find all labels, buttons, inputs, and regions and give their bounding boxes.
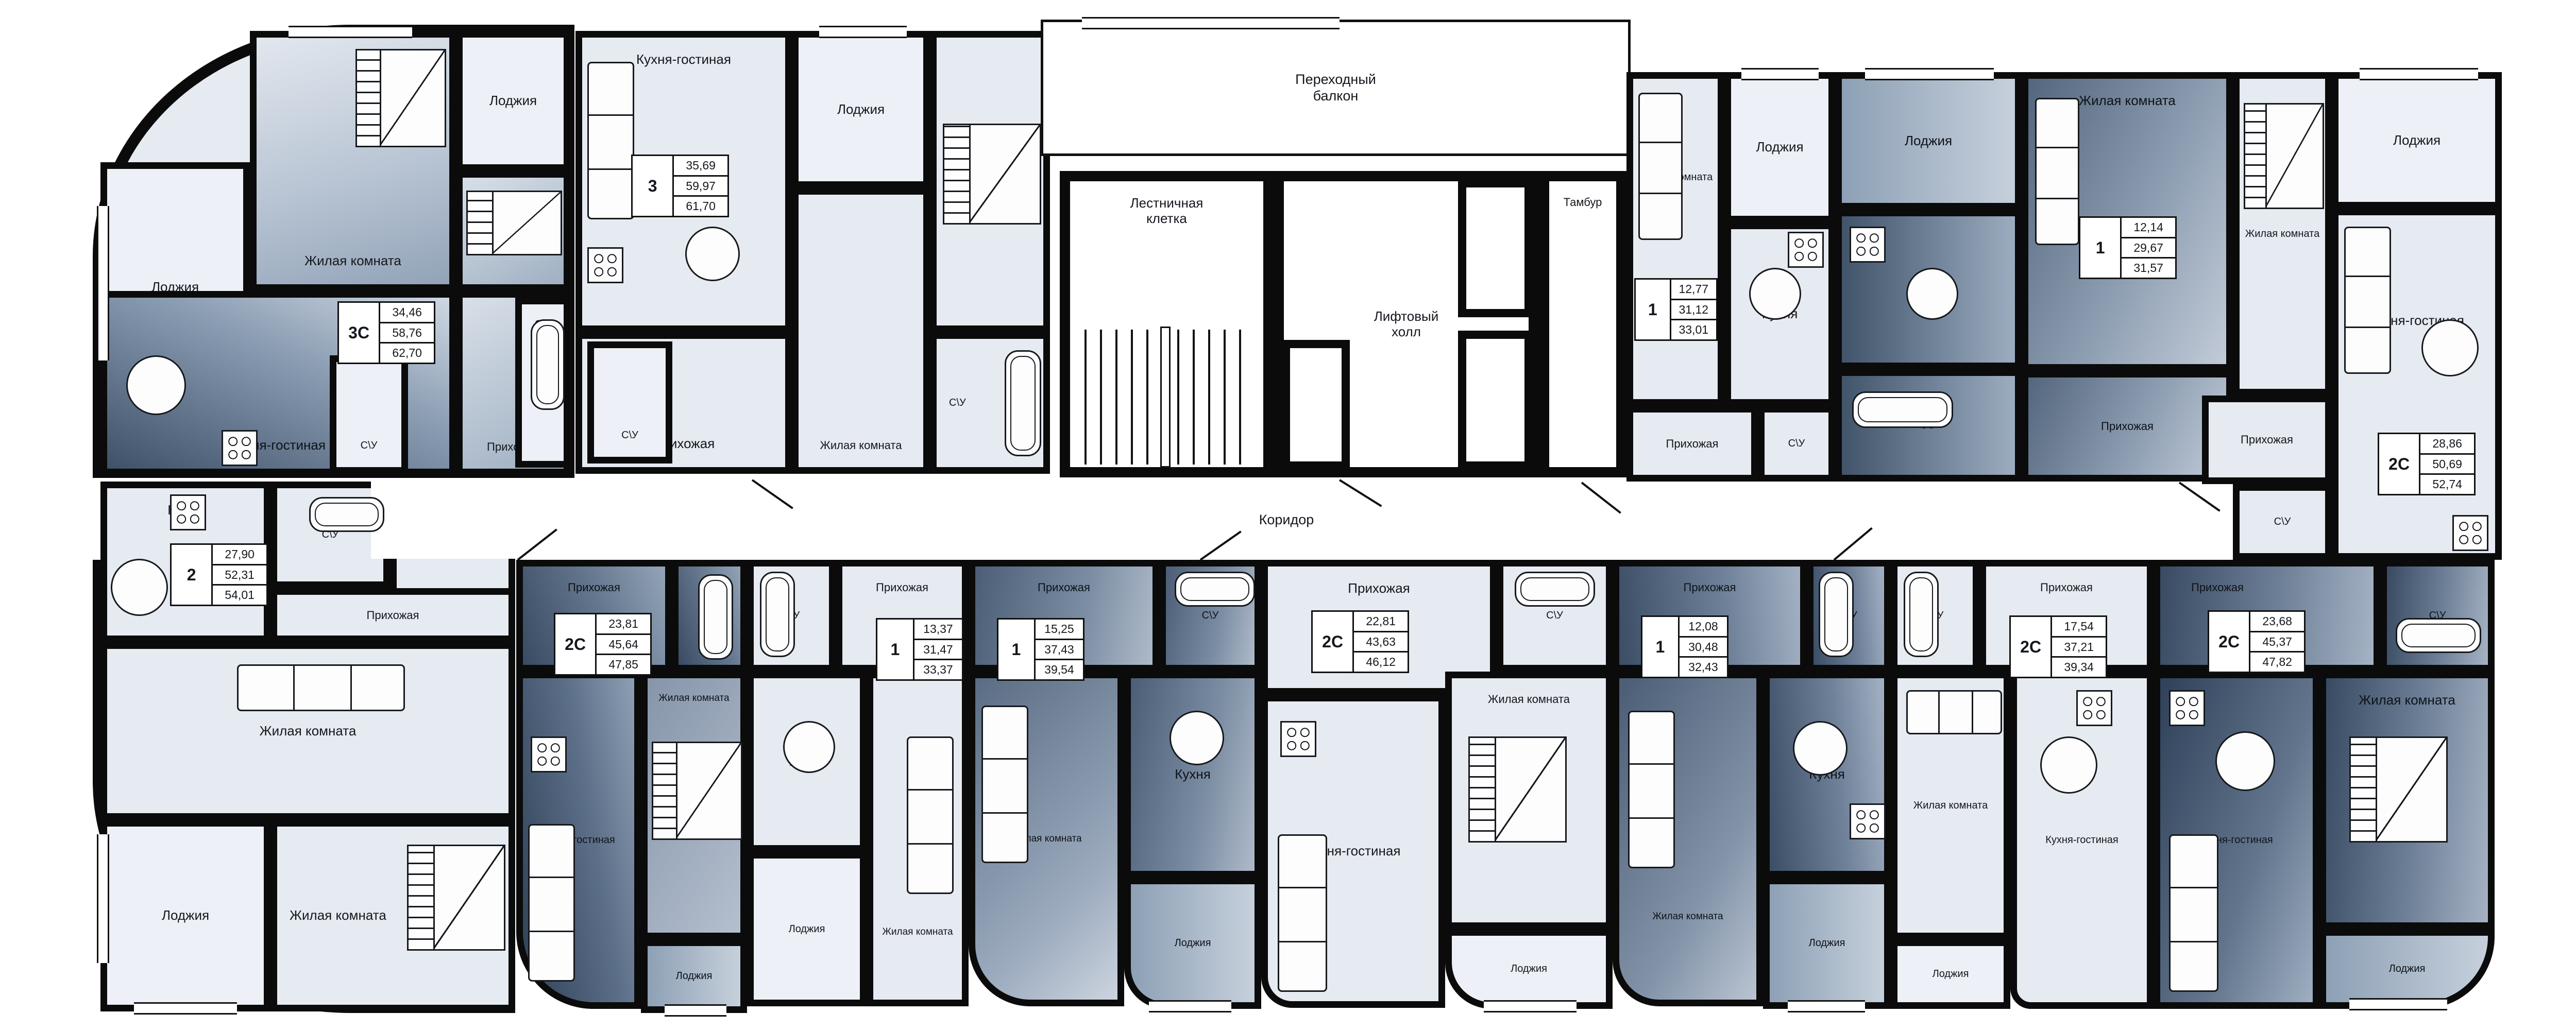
window [2360,68,2478,80]
room-label: Прихожая [1666,437,1719,450]
apt-area-total: 39,34 [2052,658,2106,677]
room-label: Лоджия [837,102,885,117]
apt-area-rooms: 35,69 [674,156,727,177]
window [1788,1000,1865,1012]
apt-area-living: 37,21 [2052,638,2106,658]
apt-d-hall: Прихожая [2022,371,2233,482]
apt-b-living-room-1: Жилая комната [792,188,930,474]
table-icon [1906,268,1958,320]
sofa-icon [981,706,1028,863]
room-label: Жилая комната [882,926,953,938]
stove-icon [531,736,567,772]
room-label: Лоджия [489,93,537,109]
bathtub-icon [698,574,733,660]
apt-area-rooms: 13,37 [914,620,962,640]
table-icon [2040,736,2097,794]
apt-type-label: 3 [633,156,674,216]
apt-k-loggia: Лоджия [1763,878,1891,1009]
room-label: Прихожая [1348,581,1410,596]
room-label: Прихожая [876,581,928,594]
room-label: Прихожая [1038,581,1090,594]
bed-icon [2244,103,2324,209]
stove-icon [170,494,206,530]
apt-area-total: 46,12 [1354,653,1408,672]
apt-m-wc: С\У [2380,560,2495,672]
bed-icon [943,124,1041,225]
tambour-label: Тамбур [1564,196,1602,209]
bathtub-icon [1819,572,1854,657]
room-label: Лоджия [1175,937,1211,949]
apt-area-living: 58,76 [380,323,434,344]
apt-area-total: 62,70 [380,344,434,363]
bathtub-icon [1852,391,1953,428]
bathtub-icon [1005,350,1041,456]
apt-area-rooms: 12,08 [1680,617,1727,638]
apt-type-label: 2 [172,545,213,605]
room-label: С\У [621,430,638,441]
apt-area-living: 43,63 [1354,632,1408,653]
room-label: Жилая комната [2245,228,2319,240]
table-icon [1170,711,1224,765]
apt-f-statbox: 2 27,90 52,31 54,01 [170,543,268,606]
room-label: Лоджия [1905,133,1952,149]
apt-area-rooms: 23,81 [597,614,650,635]
apt-c-loggia: Лоджия [1724,72,1835,222]
stove-icon [1850,227,1886,263]
apt-i-loggia: Лоджия [1124,878,1261,1009]
sofa-icon [1638,93,1683,240]
apt-d-loggia: Лоджия [1835,72,2022,210]
elevator-hall-label: Лифтовыйхолл [1374,309,1439,340]
window [819,26,907,38]
stove-icon [1788,232,1824,268]
bathtub-icon [309,497,384,532]
apt-h-statbox: 1 13,37 31,47 33,37 [876,618,963,681]
room-label: Прихожая [2101,420,2154,433]
apt-type-label: 1 [1636,280,1671,339]
room-label: Жилая комната [304,253,401,269]
apt-area-living: 29,67 [2122,238,2175,259]
window [97,834,109,963]
apt-type-label: 2С [555,614,597,674]
elevator-shaft [1458,331,1533,470]
apt-area-rooms: 12,14 [2122,218,2175,238]
bed-icon [407,845,505,951]
room-label: Лоджия [789,923,825,935]
apt-type-label: 1 [998,620,1036,679]
window [289,26,412,38]
apt-k-statbox: 1 12,08 30,48 32,43 [1641,615,1728,678]
apt-area-rooms: 15,25 [1036,620,1083,640]
apt-type-label: 1 [1642,617,1680,677]
apt-area-rooms: 23,68 [2250,612,2304,632]
apt-area-living: 52,31 [213,565,266,586]
apt-area-living: 31,12 [1671,300,1716,321]
stove-icon [1850,803,1886,839]
apt-f-loggia: Лоджия [100,820,270,1011]
apt-f-hall: Прихожая [270,588,515,642]
apt-c-statbox: 1 12,77 31,12 33,01 [1634,278,1718,341]
room-label: Жилая комната [820,439,902,452]
apt-m-loggia: Лоджия [2319,929,2495,1009]
room-label: Жилая комната [1913,800,1988,812]
window [1865,68,1994,80]
apt-area-rooms: 34,46 [380,303,434,323]
room-label: Лоджия [1756,140,1803,155]
window [1149,1000,1231,1012]
room-label: С\У [361,440,378,452]
room-label: Жилая комната [290,908,386,923]
apt-g-statbox: 2С 23,81 45,64 47,85 [554,613,652,676]
bed-icon [1468,736,1567,843]
apt-area-total: 52,74 [2420,475,2474,494]
apt-type-label: 2С [2379,434,2420,494]
room-label: Лоджия [1933,968,1969,980]
room-label: С\У [1202,610,1219,622]
bathtub-icon [760,572,795,657]
apt-area-total: 32,43 [1680,658,1727,677]
apt-c-wc: С\У [1758,406,1835,482]
room-label: Лоджия [2393,133,2441,148]
elevator-shaft [1458,179,1533,317]
apt-type-label: 2С [1313,612,1354,672]
room-label: С\У [2274,516,2291,528]
apt-b-wc-1: С\У [587,341,672,463]
room-label: Жилая комната [1652,911,1723,922]
apt-l-loggia: Лоджия [1891,939,2010,1009]
window [2349,998,2447,1010]
window [665,1004,726,1017]
apt-area-living: 31,47 [914,640,962,661]
sofa-icon [2035,98,2079,245]
window [97,206,109,360]
apt-area-rooms: 27,90 [213,545,266,565]
apt-area-rooms: 17,54 [2052,617,2106,638]
apt-a-statbox: 3С 34,46 58,76 62,70 [337,301,435,364]
apt-j-statbox: 2С 22,81 43,63 46,12 [1311,610,1409,673]
balcony-label-line1: Переходный [1295,72,1376,88]
bed-icon [355,49,446,147]
room-label: Лоджия [676,970,713,982]
apt-area-living: 37,43 [1036,640,1083,661]
window [134,1002,237,1015]
table-icon [783,721,835,773]
room-label: С\У [1546,610,1563,622]
floor-plan: Лоджия Кухня-гостиная Жилая комната Лодж… [0,0,2576,1030]
stove-icon [2452,515,2488,551]
room-label: Прихожая [367,609,419,622]
apt-type-label: 1 [877,620,914,679]
elevator-shaft [1282,340,1350,470]
room-label: Прихожая [2040,581,2093,594]
table-icon [1793,721,1848,776]
stove-icon [2169,690,2205,726]
apt-area-total: 39,54 [1036,660,1083,679]
apt-a-loggia-top: Лоджия [456,31,570,171]
apt-b-loggia: Лоджия [792,31,930,188]
apt-type-label: 3С [339,303,380,363]
bed-icon [652,742,742,840]
apt-m-statbox: 2С 23,68 45,37 47,82 [2208,610,2306,673]
room-label: Лоджия [162,908,209,923]
apt-type-label: 2С [2011,617,2052,677]
room-label: Лоджия [2389,963,2426,975]
room-label: Прихожая [1684,581,1736,594]
apt-area-total: 47,82 [2250,653,2304,672]
sofa-icon [2169,834,2218,992]
tambour: Тамбур [1539,171,1626,477]
window [1741,68,1819,80]
apt-e-statbox: 2С 28,86 50,69 52,74 [2378,433,2476,495]
apt-area-living: 50,69 [2420,455,2474,475]
apt-e-wc: С\У [2233,484,2332,560]
apt-area-total: 33,37 [914,660,962,679]
window [1082,17,1340,29]
apt-area-total: 54,01 [213,586,266,605]
sofa-icon [907,736,954,894]
sofa-icon [1628,711,1675,868]
window [1484,1000,1577,1012]
stairs-label: Лестничнаяклетка [1130,196,1204,227]
sofa-icon [2344,227,2391,374]
apt-e-hall: Прихожая [2202,396,2332,484]
corridor-label: Коридор [1259,512,1314,528]
apt-area-total: 33,01 [1671,320,1716,339]
apt-d-statbox: 1 12,14 29,67 31,57 [2079,216,2177,279]
stove-icon [587,247,623,283]
bed-icon [466,191,562,255]
balcony-label-line2: балкон [1313,88,1359,104]
apt-area-rooms: 28,86 [2420,434,2474,455]
room-label: Прихожая [568,581,620,594]
room-label: Лоджия [1809,937,1845,949]
bathtub-icon [1515,572,1595,607]
apt-i-kitchen: Кухня [1124,672,1261,878]
room-label: С\У [1788,438,1805,450]
sofa-icon [1278,834,1327,992]
room-label: Прихожая [2191,581,2244,594]
room-label: Жилая комната [2079,93,2176,109]
table-icon [111,559,168,616]
apt-g-loggia: Лоджия [641,939,747,1013]
apt-i-statbox: 1 15,25 37,43 39,54 [997,618,1084,681]
room-label: Кухня [1175,767,1211,782]
transfer-balcony: Переходный балкон [1041,20,1631,156]
apt-area-rooms: 12,77 [1671,280,1716,300]
bathtub-icon [1175,572,1255,607]
room-label: Жилая комната [260,724,357,739]
sofa-icon [528,824,575,982]
table-icon [2215,731,2275,791]
room-label: Жилая комната [1488,693,1570,706]
apt-area-living: 45,64 [597,635,650,656]
apt-area-living: 30,48 [1680,638,1727,658]
apt-c-hall: Прихожая [1626,406,1758,482]
table-icon [1749,268,1801,320]
bed-icon [2349,736,2448,843]
room-label: Лоджия [1511,963,1547,975]
stove-icon [2076,690,2112,726]
room-label: Жилая комната [658,693,729,704]
apt-a-wc-1: С\У [330,355,408,474]
corridor: Коридор [371,482,2202,559]
bathtub-icon [1904,572,1939,657]
apt-b-statbox: 3 35,69 59,97 61,70 [631,154,729,217]
apt-area-total: 61,70 [674,197,727,216]
apt-area-living: 45,37 [2250,632,2304,653]
apt-j-loggia: Лоджия [1445,929,1613,1009]
stove-icon [1280,721,1316,757]
table-icon [2421,319,2479,376]
room-label: Прихожая [2241,433,2293,446]
bathtub-icon [2396,618,2481,653]
apt-type-label: 1 [2080,218,2122,278]
apt-area-rooms: 22,81 [1354,612,1408,632]
table-icon [685,227,740,281]
room-label: Кухня-гостиная [2045,834,2119,846]
table-icon [126,355,186,415]
apt-h-loggia: Лоджия [747,852,867,1006]
apt-l-statbox: 2С 17,54 37,21 39,34 [2009,615,2107,678]
apt-area-total: 47,85 [597,655,650,674]
stove-icon [222,430,258,466]
sofa-icon [237,664,405,711]
stairs-icon [1084,330,1249,465]
sofa-icon [587,62,634,219]
apt-e-loggia: Лоджия [2332,72,2502,209]
apt-area-total: 31,57 [2122,259,2175,278]
apt-type-label: 2С [2209,612,2250,672]
sofa-icon [1906,690,2002,734]
room-label: Жилая комната [2359,693,2455,708]
apt-area-living: 59,97 [674,177,727,197]
room-label: Кухня-гостиная [636,52,731,67]
bathtub-icon [531,319,565,410]
room-label: С\У [949,397,966,409]
